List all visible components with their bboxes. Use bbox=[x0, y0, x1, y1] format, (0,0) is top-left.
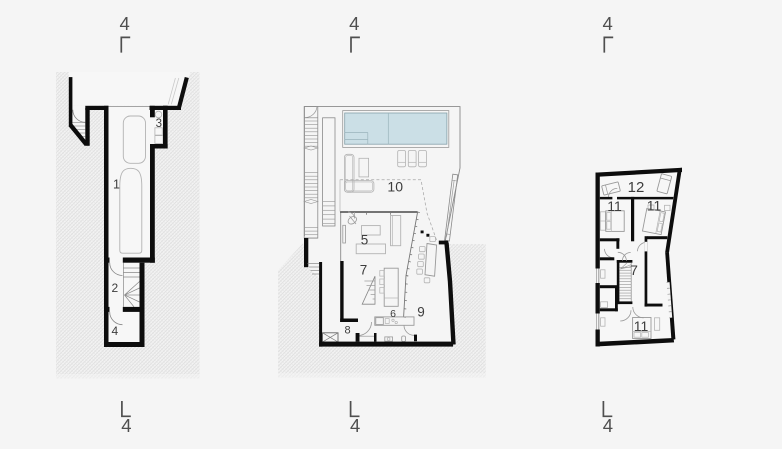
svg-text:8: 8 bbox=[344, 324, 350, 336]
svg-text:10: 10 bbox=[387, 179, 403, 195]
svg-text:4: 4 bbox=[350, 415, 360, 436]
svg-text:2: 2 bbox=[111, 281, 118, 295]
svg-text:9: 9 bbox=[417, 304, 425, 319]
svg-text:11: 11 bbox=[607, 198, 622, 214]
svg-text:5: 5 bbox=[361, 232, 369, 247]
svg-text:11: 11 bbox=[634, 318, 649, 334]
svg-text:6: 6 bbox=[390, 308, 396, 320]
svg-text:4: 4 bbox=[349, 13, 359, 34]
svg-text:4: 4 bbox=[602, 13, 612, 34]
svg-text:4: 4 bbox=[111, 324, 118, 338]
svg-text:3: 3 bbox=[156, 118, 162, 130]
svg-text:4: 4 bbox=[121, 415, 131, 436]
svg-text:12: 12 bbox=[628, 179, 645, 196]
svg-text:11: 11 bbox=[647, 198, 662, 214]
svg-text:1: 1 bbox=[113, 177, 120, 191]
svg-text:4: 4 bbox=[603, 415, 613, 436]
svg-text:7: 7 bbox=[360, 262, 368, 277]
svg-text:7: 7 bbox=[630, 262, 638, 278]
svg-text:4: 4 bbox=[119, 13, 129, 34]
